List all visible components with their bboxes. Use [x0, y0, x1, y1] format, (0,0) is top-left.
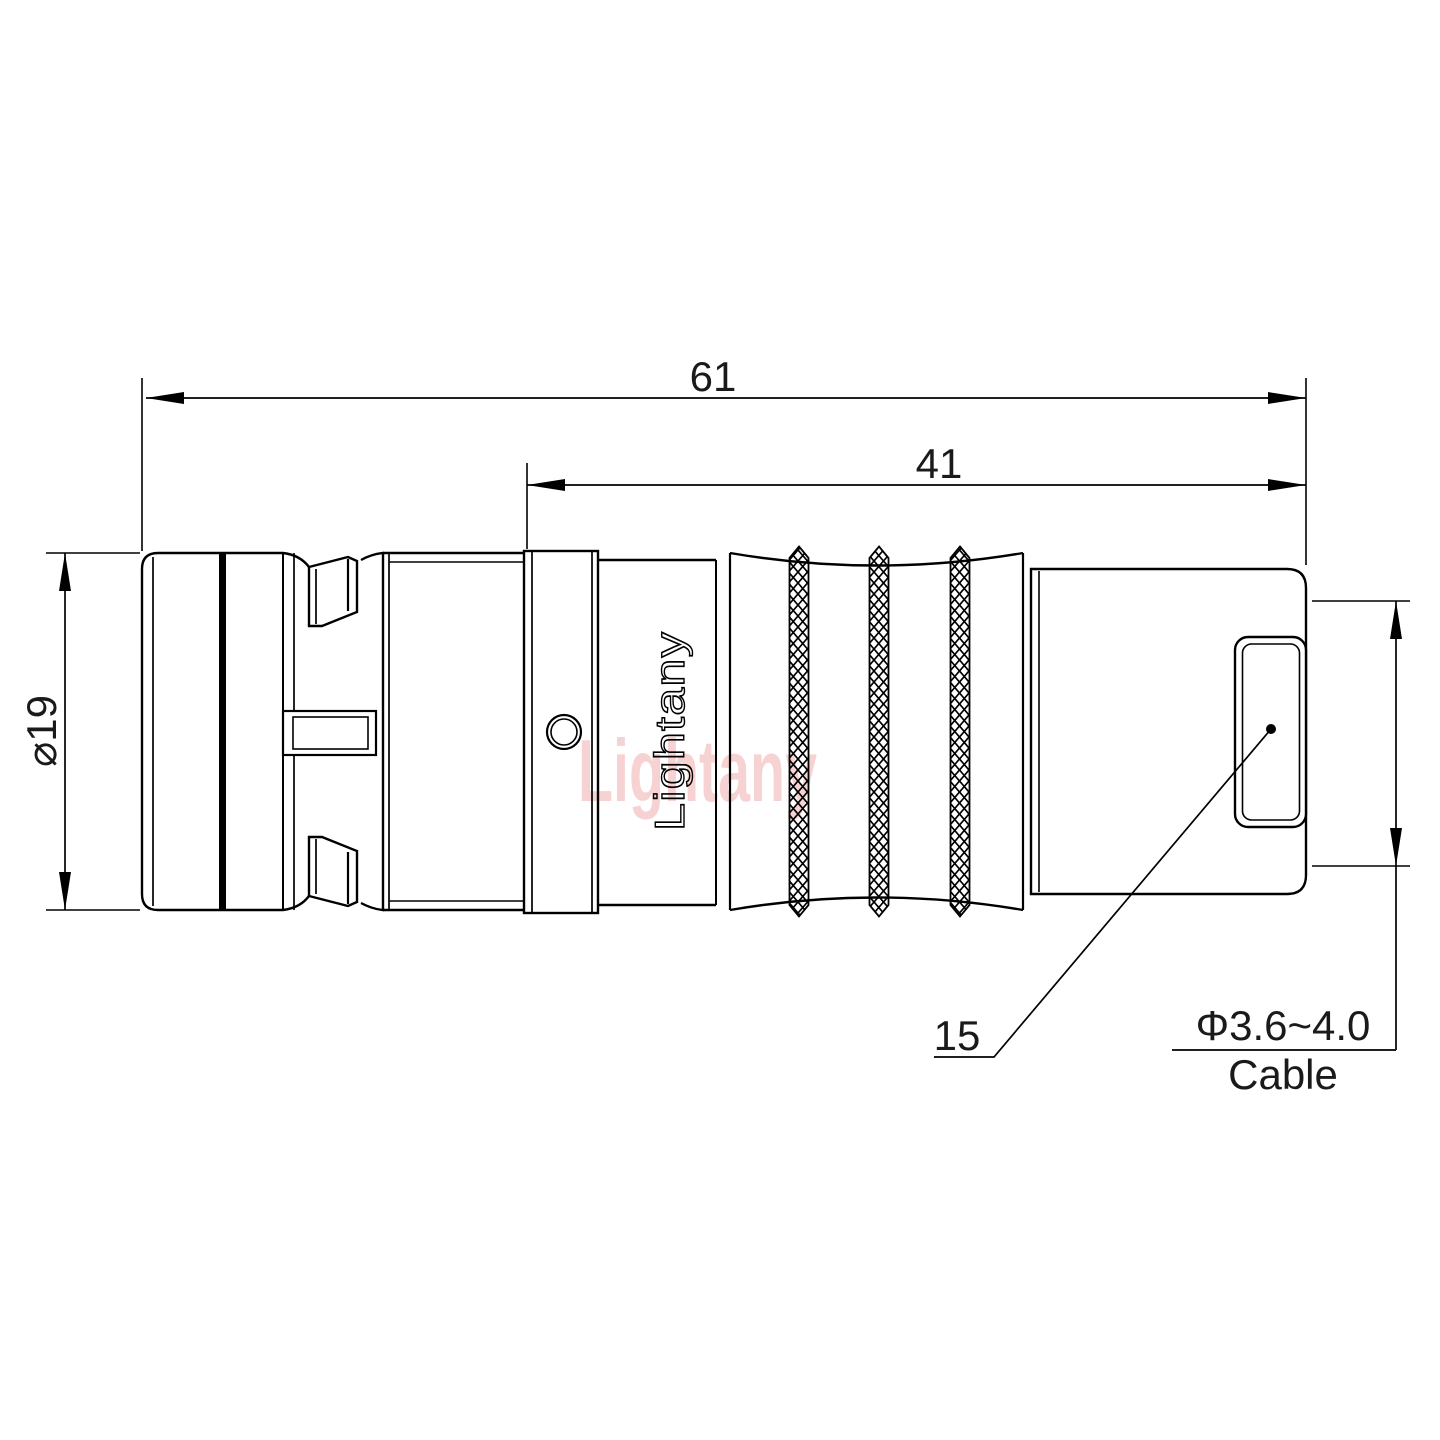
connector-technical-drawing: Lightany 61 41	[0, 0, 1440, 1440]
arrowhead-61-right	[1268, 392, 1306, 404]
arrowhead-d19-top	[59, 553, 71, 591]
cable-label-text: Cable	[1228, 1051, 1338, 1098]
knurl-band-2	[870, 547, 889, 917]
head-seal-band	[219, 554, 226, 909]
arrowhead-41-left	[527, 479, 565, 491]
dimension-overall-length: 61	[142, 353, 1306, 551]
knurl-band-3	[951, 547, 970, 917]
dimension-value-61: 61	[690, 353, 737, 400]
arrowhead-d19-bottom	[59, 872, 71, 910]
arrowhead-cable-bottom	[1390, 828, 1402, 866]
technical-drawing-page: Lightany 61 41	[0, 0, 1440, 1440]
dimension-value-41: 41	[916, 440, 963, 487]
latch-tab-top	[309, 557, 357, 626]
vent-hole-outer	[547, 715, 581, 749]
latch-tab-bottom	[309, 837, 357, 906]
dimension-outer-diameter: ⌀19	[18, 553, 140, 910]
dimension-value-d19: ⌀19	[18, 695, 65, 767]
cable-diameter-text: Φ3.6~4.0	[1196, 1002, 1371, 1049]
arrowhead-41-right	[1268, 479, 1306, 491]
connector-neck	[383, 553, 524, 910]
connector-head	[142, 553, 389, 910]
arrowhead-61-left	[146, 392, 184, 404]
ref-number-text: 15	[934, 1012, 981, 1059]
arrowhead-cable-top	[1390, 601, 1402, 639]
brand-watermark: Lightany	[578, 721, 817, 820]
dimension-rear-length: 41	[527, 440, 1306, 549]
